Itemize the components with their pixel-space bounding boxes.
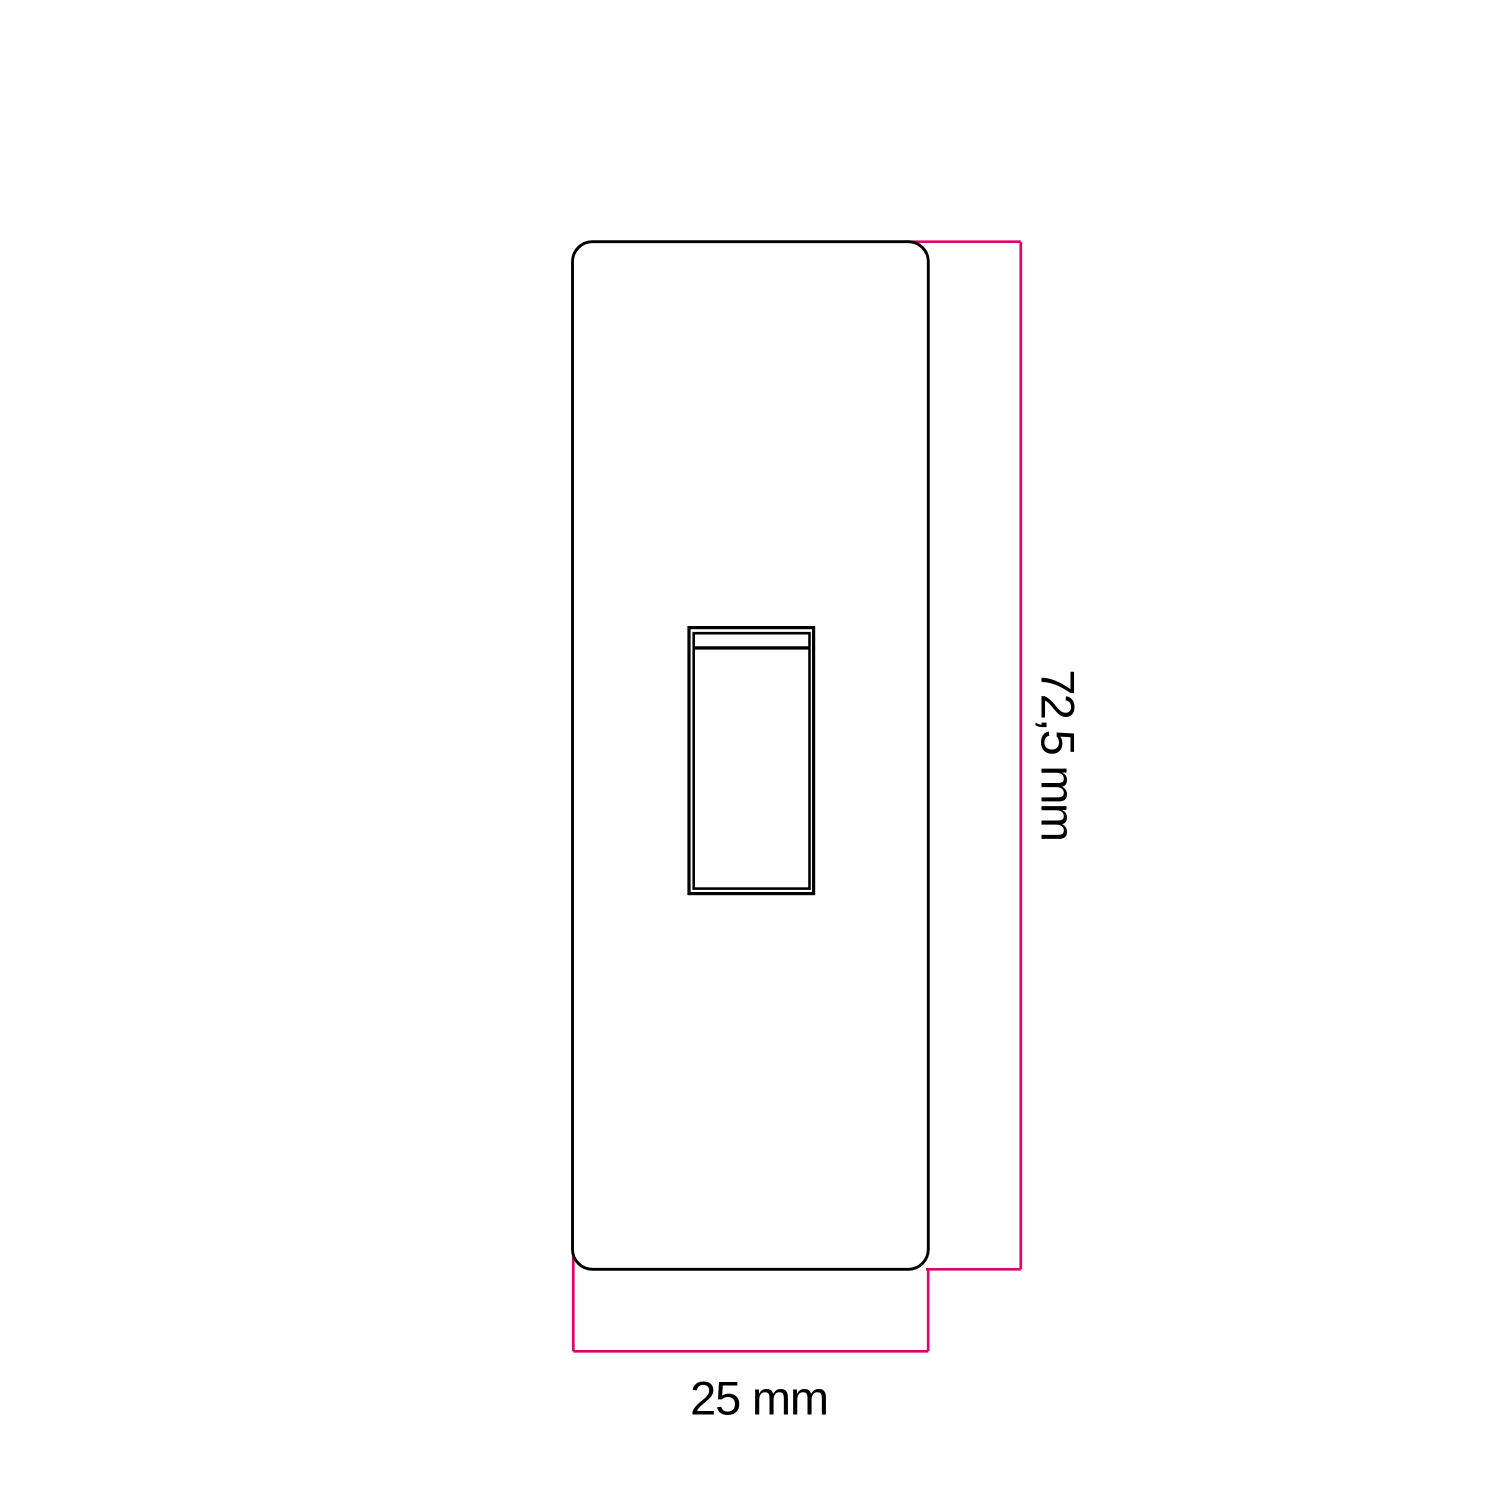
svg-text:72,5 mm: 72,5 mm — [1032, 669, 1085, 840]
svg-text:25 mm: 25 mm — [690, 1372, 828, 1425]
